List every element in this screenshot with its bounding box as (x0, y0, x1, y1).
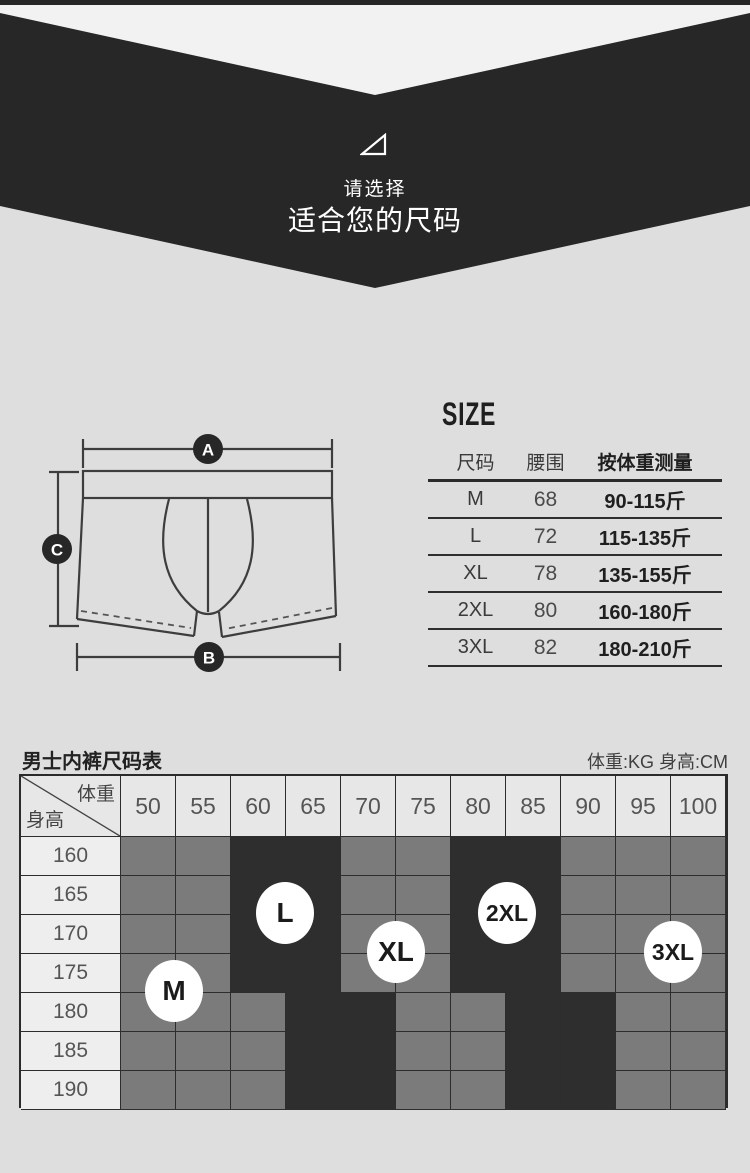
grid-cell-gray (396, 876, 451, 915)
grid-cell-gray (616, 993, 671, 1032)
grid-cell-dark (286, 993, 341, 1032)
grid-height-header: 170 (21, 915, 121, 954)
size-guide-cell-waist: 80 (523, 592, 568, 629)
triangle-outline-icon (360, 133, 387, 156)
grid-cell-dark (506, 837, 561, 876)
grid-height-header: 165 (21, 876, 121, 915)
grid-cell-dark (506, 1032, 561, 1071)
size-guide-cell-waist: 68 (523, 481, 568, 519)
dim-c-label: C (51, 541, 63, 560)
grid-cell-dark (286, 954, 341, 993)
grid-cell-gray (121, 915, 176, 954)
grid-cell-gray (396, 993, 451, 1032)
size-guide-cell-weight: 135-155斤 (568, 555, 722, 592)
grid-cell-dark (506, 1071, 561, 1110)
size-chart-title: 男士内裤尺码表 (22, 745, 162, 774)
grid-weight-header: 100 (671, 776, 726, 837)
grid-cell-gray (561, 837, 616, 876)
grid-height-header: 185 (21, 1032, 121, 1071)
size-badge-m: M (145, 960, 203, 1022)
grid-cell-dark (451, 954, 506, 993)
grid-cell-gray (176, 1071, 231, 1110)
grid-cell-dark (506, 954, 561, 993)
grid-cell-gray (341, 837, 396, 876)
size-guide-table-body: M6890-115斤L72115-135斤XL78135-155斤2XL8016… (428, 481, 722, 667)
grid-weight-header: 95 (616, 776, 671, 837)
size-guide-cell-waist: 72 (523, 518, 568, 555)
size-chart-units: 体重:KG 身高:CM (587, 748, 728, 774)
grid-cell-gray (451, 1032, 506, 1071)
grid-cell-gray (671, 993, 726, 1032)
size-guide-row: 2XL80160-180斤 (428, 592, 722, 629)
grid-cell-dark (286, 1071, 341, 1110)
grid-cell-dark (341, 1071, 396, 1110)
size-guide-cell-waist: 78 (523, 555, 568, 592)
grid-weight-header: 65 (286, 776, 341, 837)
grid-weight-header: 55 (176, 776, 231, 837)
size-badge-l: L (256, 882, 314, 944)
corner-weight-label: 体重 (77, 779, 115, 806)
size-guide-cell-size: M (428, 481, 523, 519)
grid-cell-gray (231, 1071, 286, 1110)
size-badge-3xl: 3XL (644, 921, 702, 983)
size-badge-xl: XL (367, 921, 425, 983)
grid-cell-gray (176, 1032, 231, 1071)
grid-cell-dark (286, 837, 341, 876)
grid-cell-gray (231, 993, 286, 1032)
grid-cell-gray (451, 993, 506, 1032)
size-guide-row: XL78135-155斤 (428, 555, 722, 592)
grid-cell-gray (121, 837, 176, 876)
col-header-waist: 腰围 (523, 443, 568, 481)
grid-cell-gray (616, 837, 671, 876)
size-guide-header-row: 尺码 腰围 按体重测量 (428, 443, 722, 481)
grid-corner-cell: 体重 身高 (21, 776, 121, 837)
size-guide-section: SIZE 尺码 腰围 按体重测量 M6890-115斤L72115-135斤XL… (428, 396, 722, 667)
grid-cell-dark (341, 1032, 396, 1071)
grid-height-header: 190 (21, 1071, 121, 1110)
grid-cell-gray (121, 876, 176, 915)
grid-cell-dark (561, 1032, 616, 1071)
size-guide-table: 尺码 腰围 按体重测量 M6890-115斤L72115-135斤XL78135… (428, 443, 722, 667)
grid-cell-gray (671, 876, 726, 915)
size-guide-cell-size: 2XL (428, 592, 523, 629)
size-badge-2xl: 2XL (478, 882, 536, 944)
grid-cell-dark (231, 954, 286, 993)
grid-cell-gray (176, 837, 231, 876)
grid-cell-dark (286, 1032, 341, 1071)
size-guide-row: M6890-115斤 (428, 481, 722, 519)
hero-subtitle: 请选择 (0, 174, 750, 201)
grid-cell-dark (506, 993, 561, 1032)
grid-weight-header: 75 (396, 776, 451, 837)
grid-cell-gray (671, 837, 726, 876)
underwear-diagram: A C B (40, 425, 350, 680)
dimension-markers: A C B (42, 434, 224, 672)
grid-cell-gray (396, 1071, 451, 1110)
size-guide-page: 请选择 适合您的尺码 (0, 0, 750, 1173)
grid-cell-dark (561, 993, 616, 1032)
grid-weight-header: 60 (231, 776, 286, 837)
corner-height-label: 身高 (26, 805, 64, 832)
grid-weight-header: 85 (506, 776, 561, 837)
grid-cell-gray (176, 876, 231, 915)
grid-weight-header: 80 (451, 776, 506, 837)
grid-height-header: 175 (21, 954, 121, 993)
size-guide-cell-weight: 115-135斤 (568, 518, 722, 555)
size-guide-cell-weight: 90-115斤 (568, 481, 722, 519)
grid-cell-gray (671, 1032, 726, 1071)
grid-cell-gray (561, 876, 616, 915)
grid-cell-gray (561, 954, 616, 993)
grid-cell-gray (231, 1032, 286, 1071)
grid-cell-dark (561, 1071, 616, 1110)
grid-weight-header: 90 (561, 776, 616, 837)
size-guide-cell-waist: 82 (523, 629, 568, 666)
grid-cell-gray (341, 876, 396, 915)
grid-cell-dark (341, 993, 396, 1032)
grid-cell-gray (616, 1032, 671, 1071)
hero-title: 适合您的尺码 (0, 199, 750, 239)
grid-weight-header: 70 (341, 776, 396, 837)
dim-b-label: B (203, 649, 215, 668)
grid-cell-gray (176, 915, 231, 954)
dim-a-label: A (202, 441, 214, 460)
hero-banner: 请选择 适合您的尺码 (0, 0, 750, 292)
grid-cell-dark (451, 837, 506, 876)
size-guide-row: L72115-135斤 (428, 518, 722, 555)
grid-height-header: 180 (21, 993, 121, 1032)
hero-top-strip (0, 0, 750, 5)
col-header-weight: 按体重测量 (568, 443, 722, 481)
grid-cell-gray (121, 1032, 176, 1071)
grid-height-header: 160 (21, 837, 121, 876)
size-guide-cell-size: 3XL (428, 629, 523, 666)
grid-cell-gray (451, 1071, 506, 1110)
size-guide-cell-weight: 180-210斤 (568, 629, 722, 666)
grid-cell-gray (671, 1071, 726, 1110)
size-guide-row: 3XL82180-210斤 (428, 629, 722, 666)
size-guide-title: SIZE (442, 396, 644, 433)
col-header-size: 尺码 (428, 443, 523, 481)
grid-cell-gray (561, 915, 616, 954)
grid-cell-gray (616, 876, 671, 915)
grid-cell-dark (231, 837, 286, 876)
size-guide-cell-size: L (428, 518, 523, 555)
grid-cell-gray (396, 837, 451, 876)
grid-cell-gray (121, 1071, 176, 1110)
grid-cell-gray (396, 1032, 451, 1071)
size-guide-cell-size: XL (428, 555, 523, 592)
grid-cell-gray (616, 1071, 671, 1110)
grid-weight-header: 50 (121, 776, 176, 837)
size-guide-cell-weight: 160-180斤 (568, 592, 722, 629)
